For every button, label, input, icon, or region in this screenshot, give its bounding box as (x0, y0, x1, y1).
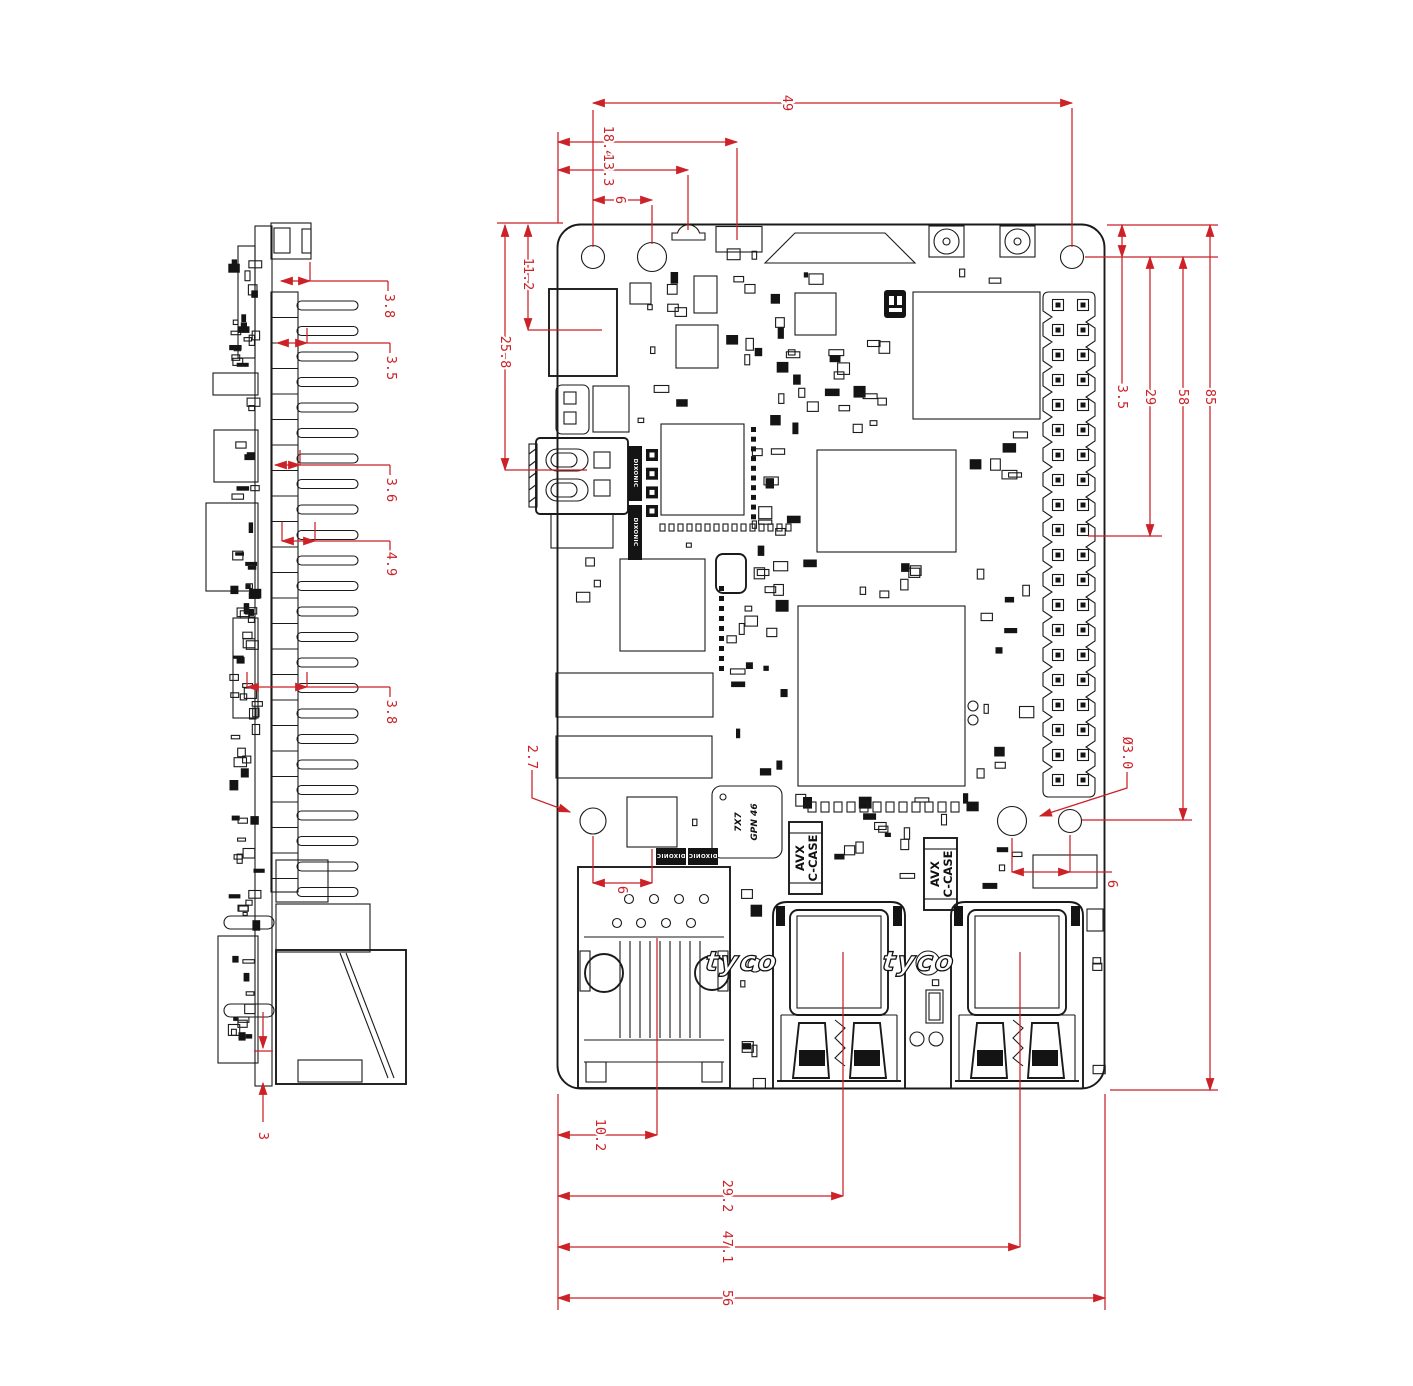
gpio-pin-center (1056, 303, 1061, 308)
smd-pad-side (243, 849, 255, 859)
smd-pad (731, 669, 746, 674)
dim-label: 13.3 (600, 154, 616, 187)
board-side-view-shape (213, 373, 258, 395)
board-top-view-shape (889, 308, 902, 312)
smd-pad (788, 350, 795, 355)
smd-pad-side (238, 748, 246, 757)
header-pin-side (297, 607, 358, 616)
smd-pad-side (230, 675, 239, 681)
gpio-pin-center (1056, 578, 1061, 583)
header-pin-side (297, 582, 358, 591)
silkscreen-text: DIXONIC (689, 854, 718, 860)
smd-pad-side (232, 259, 237, 264)
smd-pad (746, 338, 753, 350)
gpio-pin-center (1081, 503, 1086, 508)
dim-label: 3.8 (381, 294, 397, 318)
ic-large (913, 292, 1040, 419)
smd-pad (651, 347, 655, 354)
smd-pad (1003, 443, 1017, 453)
avx-capacitor-shape (789, 822, 822, 833)
smd-pad (751, 905, 763, 917)
smd-pad (901, 839, 909, 849)
header-pin-side (297, 556, 358, 565)
gpio-pin-center (1081, 703, 1086, 708)
pad-arrays-shape (751, 456, 756, 461)
smd-pad (977, 769, 984, 778)
smd-pad-side (231, 693, 239, 698)
smd-pad (942, 814, 947, 825)
pad-arrays-shape (719, 656, 724, 661)
smd-pad-side (231, 735, 239, 738)
silkscreen-text: DIXONIC (632, 518, 638, 547)
smd-pad (758, 546, 765, 556)
smd-pad (1020, 707, 1034, 718)
gpio-pin-center (1081, 603, 1086, 608)
pad-arrays-shape (719, 596, 724, 601)
smd-pad (885, 833, 891, 837)
flex-connector (556, 736, 712, 778)
board-top-view-shape (889, 296, 894, 305)
smd-pad (686, 543, 691, 547)
usb-connectors-shape (975, 916, 1059, 1008)
smd-pad-side (247, 452, 256, 460)
gpio-pin-center (1081, 453, 1086, 458)
board-top-view-shape (546, 479, 588, 501)
smd-pad-side (252, 702, 262, 707)
pad-arrays-shape (768, 524, 773, 531)
board-top-view-shape (897, 296, 902, 305)
ic-wide (817, 450, 956, 552)
smd-pad (726, 335, 738, 345)
left-connector (551, 514, 613, 548)
board-top-view-shape (795, 293, 836, 335)
smd-pad (879, 342, 890, 354)
pad-arrays-shape (751, 505, 756, 510)
smd-pad-side (239, 1032, 246, 1040)
smd-pad (970, 459, 982, 469)
smd-pad (997, 847, 1008, 852)
dim-label: 25.8 (497, 336, 513, 369)
smd-pad (676, 399, 688, 407)
smd-pad (854, 386, 866, 398)
pad-arrays-shape (714, 524, 719, 531)
header-pin-side (297, 454, 358, 463)
mounting-hole (580, 808, 606, 834)
smd-pad-side (243, 632, 252, 638)
ic-medium (661, 424, 744, 515)
smd-pad (856, 842, 863, 853)
smd-pad (880, 591, 889, 598)
star-pads (646, 449, 658, 517)
gpio-pin-center (1056, 653, 1061, 658)
pad-arrays-shape (751, 514, 756, 519)
top-edge-connector (716, 227, 762, 253)
smd-pad (1013, 432, 1027, 438)
smd-pad (859, 797, 872, 809)
smd-pad-side (234, 855, 242, 859)
pad-arrays-shape (719, 636, 724, 641)
smd-pad (779, 394, 784, 404)
star-pads-shape (650, 471, 655, 476)
mounting-hole (638, 243, 667, 272)
smd-pad-side (235, 552, 244, 556)
smd-pad (995, 762, 1005, 768)
ethernet-connector-shape (702, 1062, 722, 1082)
gpio-pin-center (1056, 528, 1061, 533)
smd-pad (839, 406, 850, 411)
smd-pad (870, 421, 877, 426)
smd-pad (793, 375, 801, 385)
smd-pad-side (250, 816, 258, 825)
usb-connectors-shape (954, 906, 963, 926)
gpio-pin-center (1081, 328, 1086, 333)
gpio-pin-center (1056, 728, 1061, 733)
smd-pad-side (229, 894, 241, 898)
dim-label: 58 (1175, 389, 1191, 405)
dim-label: 29.2 (719, 1180, 735, 1213)
avx-label: AVX (793, 845, 807, 871)
smd-pad-side (232, 1029, 237, 1035)
smd-pad-side (243, 639, 255, 648)
header-pin-side (297, 684, 358, 693)
ic-black (884, 290, 906, 318)
board-top-view-shape (551, 483, 577, 497)
component-square (627, 797, 677, 847)
smd-pad (745, 616, 758, 626)
dim-label: 47.1 (719, 1231, 735, 1264)
header-pin-side (297, 735, 358, 744)
pad-arrays-shape (696, 524, 701, 531)
smd-pad (693, 819, 697, 825)
pad-arrays-shape (719, 586, 724, 591)
sd-card-socket (765, 233, 915, 263)
pad-arrays-shape (669, 524, 674, 531)
board-top-view-shape (968, 715, 978, 725)
pad-arrays-shape (759, 524, 764, 531)
ethernet-connector-shape (613, 895, 709, 1039)
dim-label: 3 (255, 1132, 271, 1140)
power-connector (549, 289, 617, 376)
usb-connectors-shape (776, 906, 785, 926)
board-top-view-shape (630, 283, 651, 304)
pad-arrays-shape (705, 524, 710, 531)
smd-pad-side (249, 589, 261, 599)
dim-label: 49 (779, 95, 795, 111)
smd-pad-side (244, 338, 251, 341)
smd-pad (792, 423, 798, 435)
smd-pad-side (228, 264, 240, 273)
pad-arrays-shape (751, 466, 756, 471)
smd-pad (915, 798, 929, 802)
usb-brand-logo: tyco (881, 947, 957, 978)
smd-pad (977, 569, 984, 579)
ethernet-connector (578, 867, 730, 1088)
smd-pad (807, 402, 818, 412)
board-top-view-shape (546, 449, 588, 471)
smd-pad (984, 704, 988, 713)
gpio-pin-center (1056, 603, 1061, 608)
ic-marking: GPN 46 (750, 803, 760, 840)
ethernet-connector-shape-shape (637, 919, 646, 928)
pad-arrays-shape (751, 427, 756, 432)
smd-pad-side (234, 758, 246, 767)
board-side-view-shape (298, 1060, 362, 1082)
smd-pad (1023, 585, 1030, 596)
smd-pad (763, 666, 768, 671)
side-rca-body (206, 503, 258, 591)
smd-pad (727, 636, 736, 643)
smd-pad (755, 348, 763, 356)
smd-pad (736, 729, 740, 739)
smd-pad (830, 355, 841, 362)
board-top-view-shape (564, 412, 576, 424)
gpio-pin-center (1081, 728, 1086, 733)
smd-pad (1005, 597, 1014, 603)
smd-pad (638, 418, 644, 422)
smd-pad-side (241, 314, 246, 322)
board-top-view-shape (1005, 229, 1030, 254)
smd-pad-side (245, 562, 257, 566)
smd-pad (734, 277, 744, 282)
dim-label: 11.2 (520, 258, 536, 291)
pad-arrays-shape (751, 437, 756, 442)
dim-label: 29 (1142, 389, 1158, 405)
board-side-view-shape (233, 618, 258, 718)
smd-pad-side (233, 320, 238, 324)
smd-pad (577, 592, 590, 602)
smd-pad-side (232, 494, 244, 499)
dim-label: 6 (614, 886, 630, 894)
smd-pad (745, 606, 752, 611)
board-top-view-shape (594, 452, 610, 468)
usb-connectors-shape (790, 910, 888, 1015)
usb-connectors-shape (797, 916, 881, 1008)
avx-capacitor: AVX C-CASE (924, 838, 957, 910)
smd-pad (860, 587, 865, 594)
star-pads-shape (650, 509, 655, 514)
flex-connector (556, 673, 713, 717)
mounting-hole (1059, 810, 1082, 833)
gpio-pin-center (1081, 553, 1086, 558)
pad-arrays-shape (925, 802, 933, 812)
smd-pad (803, 560, 817, 568)
ic-gpn (712, 786, 782, 858)
smd-pad (999, 865, 1004, 871)
smd-pad (753, 1079, 765, 1089)
dim-label: 3.8 (383, 700, 399, 724)
board-top-view-shape (593, 386, 629, 432)
gpio-pin-center (1081, 303, 1086, 308)
smd-pad (825, 389, 840, 397)
pad-arrays-shape (687, 524, 692, 531)
smd-pad (746, 662, 753, 669)
usb-shell (773, 902, 905, 1088)
smd-pad (989, 278, 1001, 283)
smd-pad-side (252, 725, 259, 735)
pad-arrays-shape (873, 802, 881, 812)
board-top-view-shape (929, 993, 940, 1020)
usb-connectors-shape (1013, 1020, 1023, 1066)
smd-pad (766, 478, 774, 488)
pad-arrays-shape (886, 802, 894, 812)
pad-arrays-shape (938, 802, 946, 812)
gpio-pin-center (1056, 403, 1061, 408)
star-pads-shape (650, 490, 655, 495)
side-pin (224, 916, 274, 929)
silkscreen-text: DIXONIC (632, 459, 638, 488)
ethernet-connector-shape (586, 1062, 606, 1082)
gpio-pin-center (1056, 703, 1061, 708)
smd-pad (654, 386, 669, 393)
usb-connectors-shape (799, 1050, 825, 1066)
smd-pad (863, 813, 876, 820)
pad-arrays-shape (719, 646, 724, 651)
board-side-view-shape (340, 953, 388, 1078)
smd-pad (767, 628, 777, 636)
smd-pad-side (230, 780, 239, 790)
smd-pad (757, 570, 769, 576)
pad-arrays-shape (751, 476, 756, 481)
gpio-pin-center (1056, 428, 1061, 433)
mounting-hole (998, 807, 1027, 836)
smd-pad (667, 285, 677, 295)
smd-pad (809, 274, 823, 284)
smd-pad (878, 398, 887, 405)
smd-pad-side (246, 1034, 253, 1039)
side-usb-body (276, 904, 370, 952)
smd-pad (742, 1043, 751, 1049)
smd-pad-side (236, 442, 246, 448)
smd-pad (741, 981, 745, 987)
board-top-view-shape (910, 1032, 924, 1046)
smd-pad (967, 802, 979, 812)
header-pin-side (297, 378, 358, 387)
gpio-pin-center (1056, 678, 1061, 683)
smd-pad (1012, 852, 1022, 856)
gpio-pin-center (1081, 353, 1086, 358)
ic-small (676, 325, 718, 368)
smd-pad (983, 883, 998, 889)
gpio-pin-center (1081, 778, 1086, 783)
board-top-view-shape (968, 701, 978, 711)
gpio-pin-center (1056, 753, 1061, 758)
side-header-pins (271, 301, 358, 897)
gpio-header-shape (1043, 292, 1095, 797)
gpio-pin-center (1081, 428, 1086, 433)
header-pin-side (297, 658, 358, 667)
ethernet-connector-shape-shape (625, 895, 634, 904)
smd-pad (901, 579, 908, 590)
header-pin-side (297, 531, 358, 540)
smd-pad (648, 305, 653, 310)
smd-pad-side (246, 900, 252, 905)
smd-pad (804, 272, 808, 277)
smd-pad (1009, 473, 1022, 477)
smd-pad (834, 372, 844, 379)
hdmi-connector (536, 438, 628, 514)
dim-label: Ø3.0 (1119, 737, 1135, 770)
smd-pad-side (229, 345, 241, 350)
silkscreen-text: DIXONIC (657, 854, 686, 860)
smd-pad-side (238, 838, 246, 841)
smd-pad (770, 415, 781, 425)
smd-pad (745, 285, 755, 294)
gpio-pin-center (1081, 378, 1086, 383)
side-smd-scatter (228, 259, 264, 1040)
board-top-view-shape (694, 276, 717, 313)
smd-pad (745, 355, 750, 365)
ethernet-connector-shape-shape (700, 895, 709, 904)
header-pin-side (297, 633, 358, 642)
pad-arrays-shape (719, 666, 724, 671)
smd-pad (834, 854, 844, 860)
smd-pad-side (252, 920, 260, 931)
side-pin (224, 1004, 274, 1017)
gpio-pin-center (1056, 553, 1061, 558)
dim-label: 85 (1202, 389, 1218, 405)
board-top-view-shape (929, 1032, 943, 1046)
board-side-view-shape (274, 228, 290, 253)
gpio-pin-center (1056, 353, 1061, 358)
gpio-pin-center (1081, 678, 1086, 683)
smd-pad (671, 272, 679, 284)
board-side-view (206, 223, 406, 1086)
board-top-view-shape (934, 229, 959, 254)
smd-pad (742, 890, 753, 899)
board-side-view-shape (346, 953, 394, 1078)
usb-connectors-shape (854, 1050, 880, 1066)
dim-label: 6 (612, 196, 628, 204)
usb-connectors-shape (1032, 1050, 1058, 1066)
ethernet-connector-shape-shape (662, 919, 671, 928)
smd-pad (1004, 628, 1017, 633)
header-pin-side (297, 837, 358, 846)
smd-pad (774, 562, 788, 571)
pad-arrays-shape (899, 802, 907, 812)
pad-arrays-shape (821, 802, 829, 812)
smd-pad (776, 318, 785, 328)
pad-arrays-shape (751, 495, 756, 500)
gpio-pin-center (1056, 328, 1061, 333)
dim-label: 4.9 (383, 552, 399, 576)
smd-pad (981, 613, 992, 620)
smd-pad-side (240, 694, 246, 700)
header-pin-side (297, 301, 358, 310)
dim-label: 3.5 (383, 356, 399, 380)
smd-pad-side (232, 956, 238, 963)
smd-pad (994, 747, 1005, 757)
gpio-pin-center (1081, 578, 1086, 583)
dim-label: 3.5 (1114, 385, 1130, 409)
smd-pad (991, 459, 1001, 470)
smd-pad (760, 768, 771, 775)
smd-pad (594, 580, 600, 587)
smd-pad-side (245, 271, 250, 281)
board-top-view-shape (564, 392, 576, 404)
board-top-view-shape (1014, 238, 1021, 245)
dim-label: 6 (1104, 880, 1120, 888)
smd-pad (904, 828, 909, 839)
smd-scatter (577, 249, 1106, 1089)
gpio-pin-center (1081, 528, 1086, 533)
pad-arrays-shape (719, 606, 724, 611)
dim-label: 2.7 (524, 745, 540, 769)
smd-pad (771, 294, 780, 304)
board-top-view: GPN 46 7X7 DIXONIC DIXONIC DIXONIC DIXON… (529, 225, 1105, 1089)
header-pin-side (297, 786, 358, 795)
dim-label: 56 (719, 1290, 735, 1306)
pad-arrays-shape (732, 524, 737, 531)
